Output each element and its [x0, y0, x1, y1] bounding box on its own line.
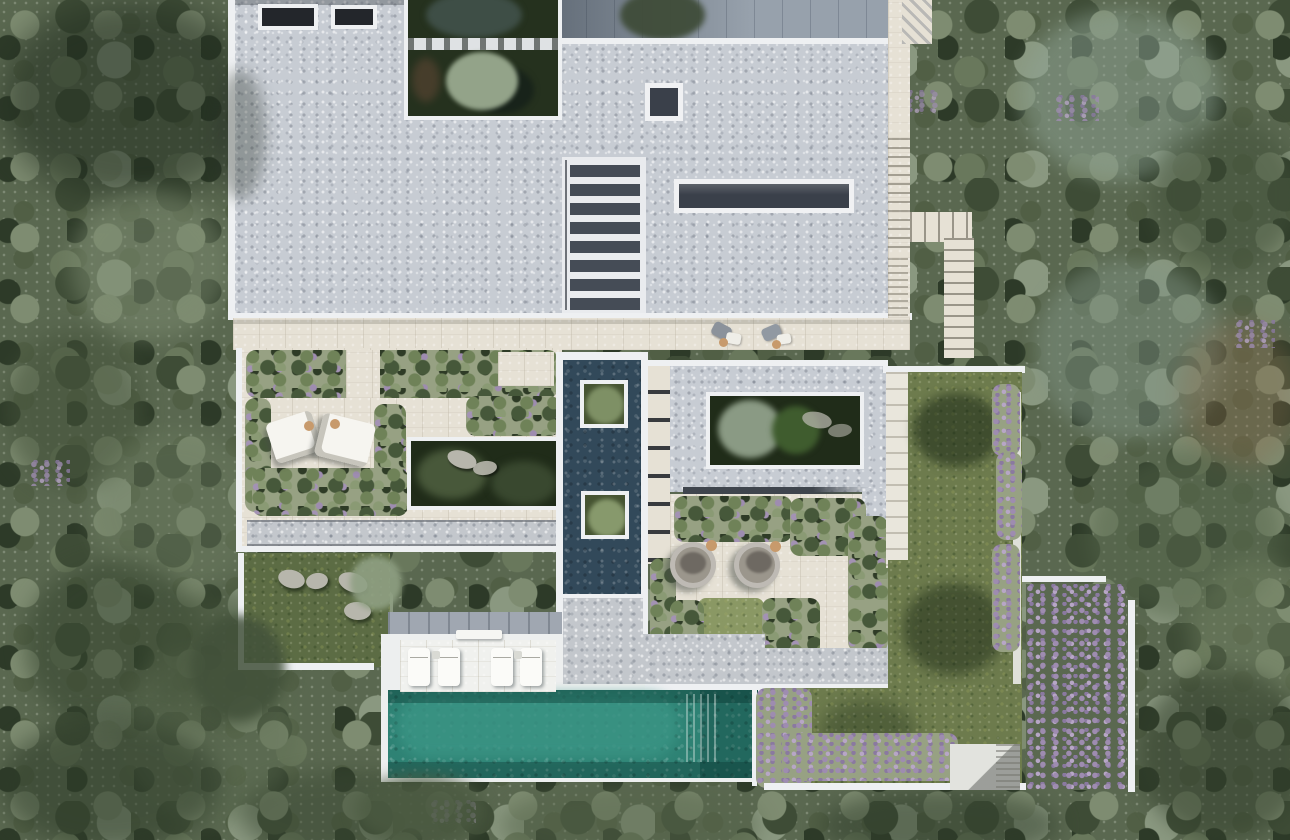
flower-border [992, 384, 1020, 456]
sun-lounger [491, 648, 513, 686]
tree-shadow-on-lawn [913, 393, 1001, 467]
overhanging-canopy [190, 615, 285, 720]
daybed-side-table [304, 421, 314, 431]
terrace-side-table [719, 338, 728, 347]
overhanging-canopy [355, 775, 485, 840]
roof-tree-courtyard [404, 0, 562, 120]
courtyard-wall-shadow [683, 487, 869, 494]
courtyard-bottom-gravel [645, 648, 888, 684]
sun-lounger [438, 648, 460, 686]
stairwell-treads [570, 165, 640, 311]
forest-canopy-patch [1150, 120, 1290, 270]
daybed-side-table [706, 540, 717, 551]
boulder [827, 423, 852, 438]
roof-vent-opening [335, 9, 373, 25]
sunken-garden-moss [491, 461, 557, 505]
garden-bottom-edge [240, 546, 562, 552]
gravel-drainage-band [247, 520, 560, 546]
flower-border [992, 544, 1020, 652]
roof-vent [258, 4, 318, 30]
garden-steps-descending [944, 238, 974, 358]
sunken-garden-west [407, 437, 563, 510]
wildflower-cluster [1235, 320, 1275, 348]
forest-canopy-patch [70, 190, 230, 340]
upper-terrace-shadowed [558, 0, 908, 42]
sunken-garden-east [706, 392, 864, 469]
planting-bed [848, 516, 888, 652]
sun-lounger [520, 648, 542, 686]
garden-left-edge [236, 348, 242, 552]
daybed-cushions [680, 552, 706, 574]
walled-garden-bed [1026, 584, 1126, 790]
stepping-stone-path [648, 366, 670, 564]
breezeway-roof-shadow [233, 320, 910, 324]
planter-tree-canopy [588, 499, 626, 537]
wildflower-cluster [30, 460, 70, 486]
pool-bench [456, 630, 502, 639]
sage-bush [350, 556, 402, 610]
roof-skylight-linear [674, 179, 854, 213]
pool-bright-center [398, 694, 678, 758]
garden-path [498, 352, 554, 386]
planting-bed [252, 468, 408, 516]
pool-steps [686, 694, 720, 762]
walled-bed-right-edge [1128, 600, 1135, 792]
courtyard-rust-ground [412, 58, 440, 102]
sun-lounger [408, 648, 430, 686]
steps-treads [996, 744, 1020, 790]
lounger-side-table [514, 651, 522, 659]
walled-bed-top-edge [1022, 576, 1106, 582]
south-flower-bed [782, 733, 958, 781]
daybed-side-table [330, 419, 340, 429]
roof-vent [331, 5, 377, 29]
planter-tree-canopy [586, 386, 624, 424]
courtyard-tree-canopy [446, 52, 518, 110]
roof-skylight-square [645, 83, 683, 121]
lounger-side-table [432, 651, 440, 659]
lawn-steps-pad [950, 744, 1020, 790]
planting-bed [466, 396, 560, 436]
walk-column-steps [888, 258, 908, 318]
roof-top-edge [554, 38, 908, 44]
tree-shadow-on-roof-edge [214, 70, 266, 200]
courtyard-upper-canopy [426, 0, 522, 38]
courtyard-walkway-stripes [408, 38, 558, 50]
planting-bed [674, 496, 792, 542]
roof-vent-opening [262, 8, 314, 26]
daybed-side-table [770, 541, 781, 552]
wildflower-cluster [905, 90, 941, 114]
walk-column-steps [888, 138, 910, 250]
reflecting-pool-planter [581, 491, 629, 539]
aerial-villa-render [0, 0, 1290, 840]
stairwell-side-line [565, 160, 567, 310]
garden-path [346, 350, 380, 398]
flower-border [996, 452, 1022, 540]
tree-shadow-on-lawn [903, 583, 1005, 675]
terrace-side-table [772, 340, 781, 349]
forest-canopy-patch [0, 720, 220, 840]
wildflower-cluster [1055, 95, 1099, 121]
reflecting-pool-planter [580, 380, 628, 428]
daybed-cushions [746, 551, 772, 573]
lawn-edge-walk [886, 372, 910, 568]
slatted-deck-corner [902, 0, 932, 44]
roof-stairwell [562, 157, 646, 313]
